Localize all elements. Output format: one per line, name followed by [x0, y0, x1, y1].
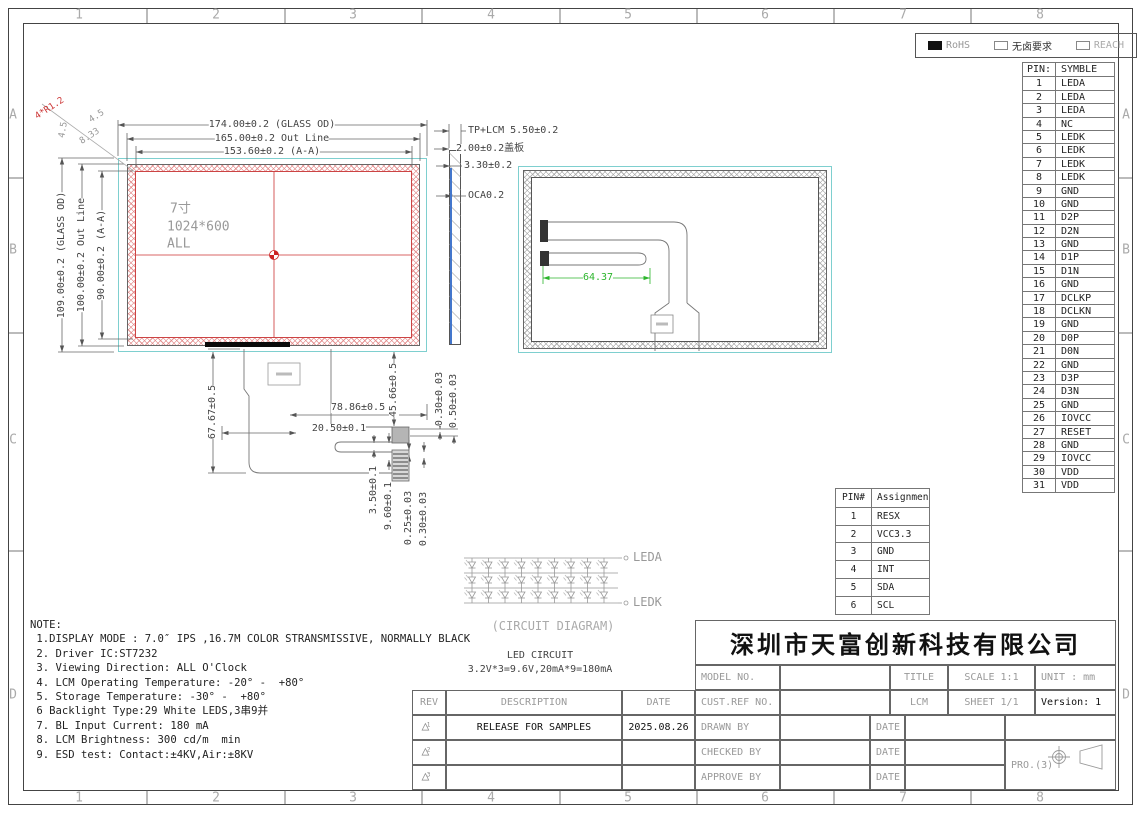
symbol-cell: GND: [1056, 439, 1114, 451]
rev-cell: REV: [412, 690, 446, 715]
compliance-label: REACH: [1094, 40, 1124, 51]
compliance-bar: RoHS无卤要求REACH: [915, 33, 1137, 58]
table-row: 15D1N: [1023, 264, 1114, 277]
rev-cell: [446, 765, 622, 790]
dim-label: LED CIRCUIT: [507, 651, 573, 661]
symbol-cell: D0N: [1056, 345, 1114, 357]
pin-cell: 20: [1023, 332, 1056, 344]
pin-cell: 25: [1023, 399, 1056, 411]
symbol-cell: SCL: [872, 597, 929, 614]
note-line: 3. Viewing Direction: ALL O'Clock: [30, 661, 470, 675]
pin-cell: 3: [836, 543, 872, 560]
grid-col-label: 4: [487, 791, 495, 806]
table-row: 2VCC3.3: [836, 525, 929, 543]
table-row: 5LEDK: [1023, 130, 1114, 143]
symbol-cell: NC: [1056, 118, 1114, 130]
dim-label: OCA0.2: [468, 191, 504, 201]
dim-label: 174.00±0.2 (GLASS OD): [209, 120, 335, 130]
rev-cell: △3: [412, 765, 446, 790]
pin-cell: 1: [1023, 77, 1056, 89]
checkbox-icon[interactable]: [928, 41, 942, 50]
compliance-label: RoHS: [946, 40, 970, 51]
grid-row-label: A: [9, 108, 17, 123]
table-row: 24D3N: [1023, 384, 1114, 397]
table-row: 27RESET: [1023, 425, 1114, 438]
table-row: 8LEDK: [1023, 170, 1114, 183]
dim-label: 153.60±0.2 (A-A): [224, 147, 320, 157]
approve-by-label: APPROVE BY: [695, 765, 780, 790]
rev-cell: [622, 740, 695, 765]
grid-col-label: 8: [1036, 791, 1044, 806]
table-row: 11D2P: [1023, 210, 1114, 223]
company-name: 深圳市天富创新科技有限公司: [695, 620, 1116, 665]
pin-cell: 12: [1023, 225, 1056, 237]
symbol-cell: VDD: [1056, 479, 1114, 491]
symbol-cell: GND: [1056, 198, 1114, 210]
dim-label: ALL: [167, 238, 190, 251]
pin-cell: 14: [1023, 251, 1056, 263]
approve-date-value: [905, 765, 1005, 790]
table-row: 21D0N: [1023, 344, 1114, 357]
dim-label: 109.00±0.2 (GLASS OD): [57, 192, 67, 318]
table-row: 25GND: [1023, 398, 1114, 411]
symbol-cell: IOVCC: [1056, 412, 1114, 424]
grid-col-label: 1: [75, 791, 83, 806]
symbol-cell: DCLKN: [1056, 305, 1114, 317]
grid-col-label: 2: [212, 8, 220, 23]
dim-label: LEDA: [633, 551, 662, 563]
notes-block: NOTE: 1.DISPLAY MODE : 7.0″ IPS ,16.7M C…: [30, 618, 470, 762]
pin-cell: 26: [1023, 412, 1056, 424]
symbol-cell: D1P: [1056, 251, 1114, 263]
symbol-cell: Assignment: [872, 489, 929, 507]
pin-cell: 6: [1023, 144, 1056, 156]
cust-ref-value: [780, 690, 890, 715]
symbol-cell: LEDK: [1056, 131, 1114, 143]
symbol-cell: VDD: [1056, 466, 1114, 478]
note-line: 9. ESD test: Contact:±4KV,Air:±8KV: [30, 748, 470, 762]
pin-cell: 29: [1023, 452, 1056, 464]
dim-label: 1024*600: [167, 221, 230, 234]
grid-col-label: 4: [487, 8, 495, 23]
table-row: 6LEDK: [1023, 143, 1114, 156]
table-row: PIN:SYMBLE: [1023, 63, 1114, 76]
model-no-value: [780, 665, 890, 690]
table-row: 10GND: [1023, 197, 1114, 210]
note-line: 6 Backlight Type:29 White LEDS,3串9并: [30, 704, 470, 718]
dim-label: 0.30±0.03: [435, 372, 445, 426]
note-line: NOTE:: [30, 618, 470, 632]
dim-label: 78.86±0.5: [331, 403, 385, 413]
dim-label: 67.67±0.5: [208, 385, 218, 439]
symbol-cell: GND: [1056, 359, 1114, 371]
table-row: 1LEDA: [1023, 76, 1114, 89]
checked-by-value: [780, 740, 870, 765]
grid-row-label: C: [1122, 433, 1130, 448]
dim-label: (CIRCUIT DIAGRAM): [492, 620, 615, 632]
dim-label: 0.25±0.03: [404, 491, 414, 545]
symbol-cell: LEDK: [1056, 144, 1114, 156]
table-row: 1RESX: [836, 507, 929, 525]
table-row: 9GND: [1023, 184, 1114, 197]
grid-row-label: D: [9, 688, 17, 703]
pin-cell: 7: [1023, 158, 1056, 170]
pin-cell: 28: [1023, 439, 1056, 451]
drawn-by-value: [780, 715, 870, 740]
dim-label: 90.00±0.2 (A-A): [97, 210, 107, 300]
symbol-cell: SYMBLE: [1056, 63, 1114, 76]
rev-cell: DESCRIPTION: [446, 690, 622, 715]
grid-row-label: B: [9, 243, 17, 258]
rev-cell: RELEASE FOR SAMPLES: [446, 715, 622, 740]
pin-cell: 11: [1023, 211, 1056, 223]
pin-cell: 31: [1023, 479, 1056, 491]
pin-cell: 24: [1023, 385, 1056, 397]
table-row: 6SCL: [836, 596, 929, 614]
grid-row-label: D: [1122, 688, 1130, 703]
symbol-cell: GND: [1056, 238, 1114, 250]
table-row: 13GND: [1023, 237, 1114, 250]
checked-by-label: CHECKED BY: [695, 740, 780, 765]
grid-col-label: 6: [761, 8, 769, 23]
pin-cell: 27: [1023, 426, 1056, 438]
table-row: 4NC: [1023, 117, 1114, 130]
checkbox-icon[interactable]: [994, 41, 1008, 50]
symbol-cell: D2N: [1056, 225, 1114, 237]
pin-cell: 1: [836, 508, 872, 525]
pin-cell: 16: [1023, 278, 1056, 290]
pin-cell: 5: [1023, 131, 1056, 143]
symbol-cell: LEDK: [1056, 171, 1114, 183]
grid-col-label: 7: [899, 8, 907, 23]
table-row: 29IOVCC: [1023, 451, 1114, 464]
back-view-inner-area: [531, 177, 819, 342]
note-line: 1.DISPLAY MODE : 7.0″ IPS ,16.7M COLOR S…: [30, 632, 470, 646]
table-row: 4INT: [836, 560, 929, 578]
compliance-label: 无卤要求: [1012, 38, 1052, 53]
pin-cell: 8: [1023, 171, 1056, 183]
symbol-cell: LEDK: [1056, 158, 1114, 170]
version-label: Version: 1: [1035, 690, 1116, 715]
dim-label: 64.37: [583, 273, 613, 283]
compliance-item[interactable]: REACH: [1076, 40, 1124, 51]
drawn-date-value: [905, 715, 1005, 740]
rev-triangle-icon: △2: [422, 746, 437, 759]
pin-cell: 2: [1023, 91, 1056, 103]
symbol-cell: SDA: [872, 579, 929, 596]
model-no-label: MODEL NO.: [695, 665, 780, 690]
dim-label: 7寸: [170, 203, 191, 216]
grid-row-label: A: [1122, 108, 1130, 123]
touch-pin-table: PIN#Assignment1RESX2VCC3.33GND4INT5SDA6S…: [835, 488, 930, 615]
pin-cell: 5: [836, 579, 872, 596]
note-line: 7. BL Input Current: 180 mA: [30, 719, 470, 733]
grid-col-label: 8: [1036, 8, 1044, 23]
scale-label: SCALE 1:1: [948, 665, 1035, 690]
symbol-cell: GND: [1056, 318, 1114, 330]
interface-pin-table: PIN:SYMBLE1LEDA2LEDA3LEDA4NC5LEDK6LEDK7L…: [1022, 62, 1115, 493]
table-row: 23D3P: [1023, 371, 1114, 384]
table-row: 3GND: [836, 542, 929, 560]
compliance-item[interactable]: 无卤要求: [994, 38, 1052, 53]
symbol-cell: DCLKP: [1056, 292, 1114, 304]
table-row: 31VDD: [1023, 478, 1114, 491]
table-row: 7LEDK: [1023, 157, 1114, 170]
symbol-cell: IOVCC: [1056, 452, 1114, 464]
cust-ref-label: CUST.REF NO.: [695, 690, 780, 715]
checkbox-icon[interactable]: [1076, 41, 1090, 50]
dim-label: 9.60±0.1: [384, 482, 394, 530]
table-row: 30VDD: [1023, 465, 1114, 478]
table-row: 3LEDA: [1023, 103, 1114, 116]
drawn-by-label: DRAWN BY: [695, 715, 780, 740]
symbol-cell: D1N: [1056, 265, 1114, 277]
compliance-item[interactable]: RoHS: [928, 40, 970, 51]
table-row: 22GND: [1023, 358, 1114, 371]
table-row: 19GND: [1023, 317, 1114, 330]
drawn-date-label: DATE: [870, 715, 905, 740]
dim-label: 3.30±0.2: [464, 161, 512, 171]
projection-cell-top: [1005, 715, 1116, 740]
pin-cell: 18: [1023, 305, 1056, 317]
dim-label: TP+LCM 5.50±0.2: [468, 126, 558, 136]
grid-col-label: 7: [899, 791, 907, 806]
pin-cell: 21: [1023, 345, 1056, 357]
rev-cell: 2025.08.26: [622, 715, 695, 740]
pin-cell: 9: [1023, 185, 1056, 197]
table-row: 20D0P: [1023, 331, 1114, 344]
checked-date-label: DATE: [870, 740, 905, 765]
table-row: 12D2N: [1023, 224, 1114, 237]
unit-label: UNIT : mm: [1035, 665, 1116, 690]
grid-col-label: 2: [212, 791, 220, 806]
dim-label: 0.50±0.03: [449, 374, 459, 428]
grid-col-label: 3: [349, 8, 357, 23]
symbol-cell: LEDA: [1056, 77, 1114, 89]
symbol-cell: D2P: [1056, 211, 1114, 223]
note-line: 8. LCM Brightness: 300 cd/m min: [30, 733, 470, 747]
table-row: 2LEDA: [1023, 90, 1114, 103]
grid-row-label: B: [1122, 243, 1130, 258]
pin-cell: 4: [1023, 118, 1056, 130]
symbol-cell: LEDA: [1056, 104, 1114, 116]
pin-cell: 22: [1023, 359, 1056, 371]
table-row: 18DCLKN: [1023, 304, 1114, 317]
symbol-cell: VCC3.3: [872, 526, 929, 543]
table-row: 16GND: [1023, 277, 1114, 290]
drawing-sheet: 1122334455667788AABBCCDD RoHS无卤要求REACH P…: [0, 0, 1141, 813]
pin-cell: 19: [1023, 318, 1056, 330]
grid-col-label: 1: [75, 8, 83, 23]
symbol-cell: RESX: [872, 508, 929, 525]
dim-label: 3.50±0.1: [369, 466, 379, 514]
symbol-cell: LEDA: [1056, 91, 1114, 103]
note-line: 4. LCM Operating Temperature: -20° - +80…: [30, 676, 470, 690]
symbol-cell: RESET: [1056, 426, 1114, 438]
symbol-cell: GND: [1056, 278, 1114, 290]
dim-label: 0.30±0.03: [419, 492, 429, 546]
symbol-cell: GND: [872, 543, 929, 560]
pin-cell: 15: [1023, 265, 1056, 277]
dim-label: LEDK: [633, 596, 662, 608]
title-label: TITLE: [890, 665, 948, 690]
lcm-label: LCM: [890, 690, 948, 715]
symbol-cell: D0P: [1056, 332, 1114, 344]
sheet-label: SHEET 1/1: [948, 690, 1035, 715]
rev-triangle-icon: △1: [422, 721, 437, 734]
grid-row-label: C: [9, 433, 17, 448]
table-row: 28GND: [1023, 438, 1114, 451]
dim-label: 20.50±0.1: [312, 424, 366, 434]
front-view-active-area: [135, 171, 412, 338]
pin-cell: 17: [1023, 292, 1056, 304]
table-row: PIN#Assignment: [836, 489, 929, 507]
projection-cell: PRO.(3): [1005, 740, 1116, 790]
pin-cell: 23: [1023, 372, 1056, 384]
pin-cell: 4: [836, 561, 872, 578]
dim-label: 45.66±0.5: [389, 363, 399, 417]
grid-col-label: 6: [761, 791, 769, 806]
side-view-stack: [449, 150, 461, 345]
symbol-cell: D3N: [1056, 385, 1114, 397]
symbol-cell: D3P: [1056, 372, 1114, 384]
grid-col-label: 5: [624, 8, 632, 23]
note-line: 5. Storage Temperature: -30° - +80°: [30, 690, 470, 704]
dim-label: 2.00±0.2盖板: [456, 144, 524, 154]
pin-cell: 6: [836, 597, 872, 614]
pin-cell: PIN#: [836, 489, 872, 507]
rev-cell: △2: [412, 740, 446, 765]
grid-col-label: 3: [349, 791, 357, 806]
rev-triangle-icon: △3: [422, 771, 437, 784]
table-row: 17DCLKP: [1023, 291, 1114, 304]
pin-cell: 13: [1023, 238, 1056, 250]
dim-label: 100.00±0.2 Out Line: [77, 198, 87, 312]
grid-col-label: 5: [624, 791, 632, 806]
approve-date-label: DATE: [870, 765, 905, 790]
checked-date-value: [905, 740, 1005, 765]
rev-cell: [446, 740, 622, 765]
rev-cell: [622, 765, 695, 790]
symbol-cell: GND: [1056, 185, 1114, 197]
table-row: 5SDA: [836, 578, 929, 596]
table-row: 26IOVCC: [1023, 411, 1114, 424]
approve-by-value: [780, 765, 870, 790]
dim-label: 165.00±0.2 Out Line: [215, 134, 329, 144]
pin-cell: 2: [836, 526, 872, 543]
pin-cell: 3: [1023, 104, 1056, 116]
pin-cell: 10: [1023, 198, 1056, 210]
pin-cell: PIN:: [1023, 63, 1056, 76]
pin-cell: 30: [1023, 466, 1056, 478]
table-row: 14D1P: [1023, 250, 1114, 263]
dim-label: 3.2V*3=9.6V,20mA*9=180mA: [468, 665, 613, 675]
rev-cell: DATE: [622, 690, 695, 715]
symbol-cell: INT: [872, 561, 929, 578]
rev-cell: △1: [412, 715, 446, 740]
note-line: 2. Driver IC:ST7232: [30, 647, 470, 661]
symbol-cell: GND: [1056, 399, 1114, 411]
